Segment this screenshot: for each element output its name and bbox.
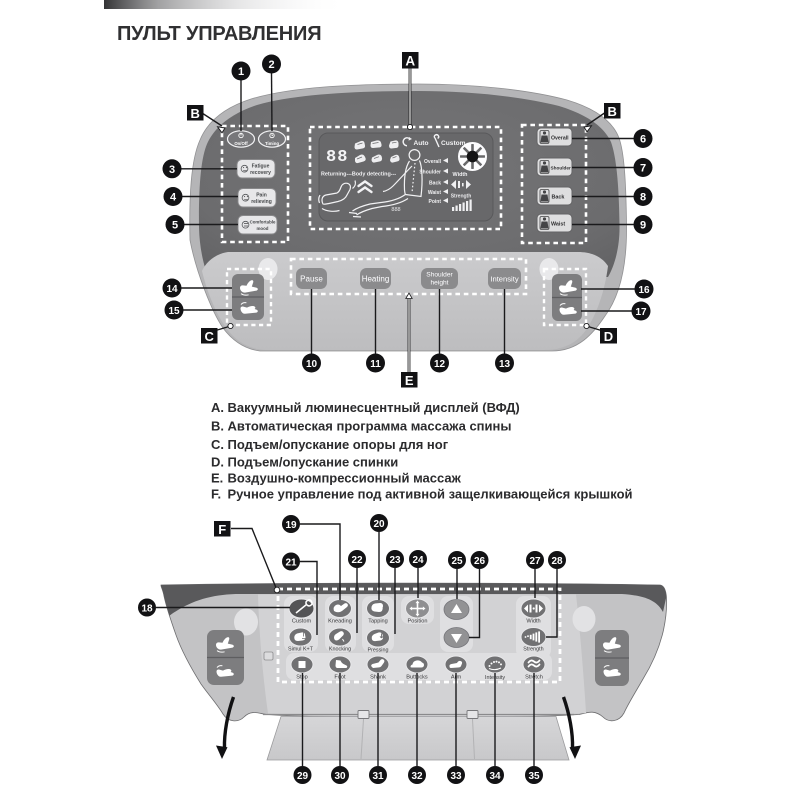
svg-text:Knocking: Knocking	[329, 647, 351, 653]
svg-text:Shoulder: Shoulder	[426, 272, 453, 279]
svg-text:ПУЛЬТ УПРАВЛЕНИЯ: ПУЛЬТ УПРАВЛЕНИЯ	[117, 23, 321, 45]
svg-text:7: 7	[640, 163, 646, 175]
svg-text:33: 33	[450, 771, 462, 782]
svg-text:Simul K+T: Simul K+T	[288, 647, 314, 653]
svg-text:Pressing: Pressing	[368, 648, 389, 654]
svg-text:Pain: Pain	[256, 193, 267, 199]
svg-text:Fatigue: Fatigue	[252, 164, 270, 170]
svg-text:Overall: Overall	[424, 159, 442, 165]
svg-text:Heating: Heating	[362, 275, 390, 284]
svg-text:888: 888	[391, 207, 400, 213]
svg-text:Returning---Body detecting---: Returning---Body detecting---	[321, 172, 396, 178]
svg-text:recovery: recovery	[250, 170, 271, 176]
svg-text:5: 5	[172, 220, 178, 232]
svg-text:E: E	[405, 373, 414, 388]
svg-text:17: 17	[635, 307, 647, 318]
svg-text:Timing: Timing	[265, 141, 279, 146]
svg-text:4: 4	[170, 192, 177, 204]
svg-text:B.Автоматическая программа мас: B.Автоматическая программа массажа спины	[211, 419, 511, 434]
svg-text:21: 21	[285, 558, 297, 569]
svg-text:Back: Back	[429, 181, 441, 187]
svg-text:height: height	[431, 280, 449, 287]
svg-text:26: 26	[474, 556, 486, 567]
svg-text:9: 9	[640, 220, 646, 232]
svg-text:Waist: Waist	[551, 222, 565, 228]
svg-text:Tapping: Tapping	[368, 619, 388, 625]
svg-text:11: 11	[370, 359, 381, 370]
svg-text:18: 18	[141, 604, 153, 615]
svg-text:25: 25	[451, 556, 463, 567]
svg-text:31: 31	[372, 771, 384, 782]
svg-text:Width: Width	[453, 172, 468, 178]
svg-text:32: 32	[411, 771, 423, 782]
svg-text:C.Подъем/опускание опоры для н: C.Подъем/опускание опоры для ног	[211, 437, 449, 452]
svg-text:28: 28	[551, 556, 563, 567]
svg-text:35: 35	[528, 771, 540, 782]
svg-text:8: 8	[640, 192, 646, 204]
svg-text:Intensity: Intensity	[490, 275, 518, 284]
svg-text:13: 13	[499, 359, 511, 370]
svg-text:A: A	[405, 54, 415, 69]
svg-text:relieving: relieving	[251, 199, 272, 205]
svg-text:On/Off: On/Off	[234, 141, 248, 146]
svg-text:Width: Width	[526, 619, 540, 625]
svg-text:88: 88	[326, 148, 348, 167]
svg-text:E.Воздушно-компрессионный масс: E.Воздушно-компрессионный массаж	[211, 471, 462, 486]
svg-text:Shoulder: Shoulder	[419, 170, 441, 176]
svg-text:12: 12	[434, 359, 446, 370]
svg-text:14: 14	[166, 284, 178, 295]
svg-text:Position: Position	[408, 619, 428, 625]
svg-text:Custom: Custom	[441, 140, 466, 147]
svg-text:D: D	[604, 329, 613, 344]
svg-text:22: 22	[351, 555, 363, 566]
svg-text:B: B	[191, 106, 200, 121]
svg-text:Comfortable: Comfortable	[250, 220, 276, 225]
svg-text:Strength: Strength	[523, 647, 543, 653]
svg-text:29: 29	[297, 771, 309, 782]
svg-text:19: 19	[285, 520, 297, 531]
svg-text:Kneading: Kneading	[328, 619, 352, 625]
svg-text:Pause: Pause	[300, 275, 323, 284]
svg-text:C: C	[205, 329, 215, 344]
svg-text:Back: Back	[552, 195, 565, 201]
svg-text:23: 23	[389, 555, 401, 566]
svg-text:Waist: Waist	[428, 190, 441, 196]
svg-text:Overall: Overall	[551, 136, 569, 142]
svg-text:30: 30	[334, 771, 346, 782]
svg-text:15: 15	[168, 306, 180, 317]
svg-text:24: 24	[412, 555, 424, 566]
svg-text:16: 16	[638, 285, 650, 296]
svg-text:B: B	[608, 104, 617, 119]
svg-text:D.Подъем/опускание спинки: D.Подъем/опускание спинки	[211, 455, 398, 470]
svg-text:6: 6	[640, 134, 646, 146]
svg-text:F.Ручное управление под активн: F.Ручное управление под активной защелки…	[211, 487, 633, 502]
svg-text:Point: Point	[429, 199, 442, 205]
svg-text:34: 34	[489, 771, 501, 782]
svg-text:mood: mood	[257, 226, 269, 231]
svg-text:F: F	[218, 522, 226, 537]
svg-text:27: 27	[529, 556, 541, 567]
svg-text:A.Вакуумный люминесцентный дис: A.Вакуумный люминесцентный дисплей (ВФД)	[211, 400, 520, 415]
svg-text:1: 1	[238, 66, 244, 78]
svg-text:20: 20	[373, 519, 385, 530]
svg-text:2: 2	[268, 59, 274, 71]
svg-text:Custom: Custom	[292, 619, 312, 625]
svg-text:10: 10	[306, 359, 318, 370]
svg-text:Auto: Auto	[414, 140, 429, 147]
svg-text:Strength: Strength	[451, 194, 472, 200]
svg-text:Shoulder: Shoulder	[551, 166, 571, 171]
svg-text:3: 3	[169, 164, 175, 176]
